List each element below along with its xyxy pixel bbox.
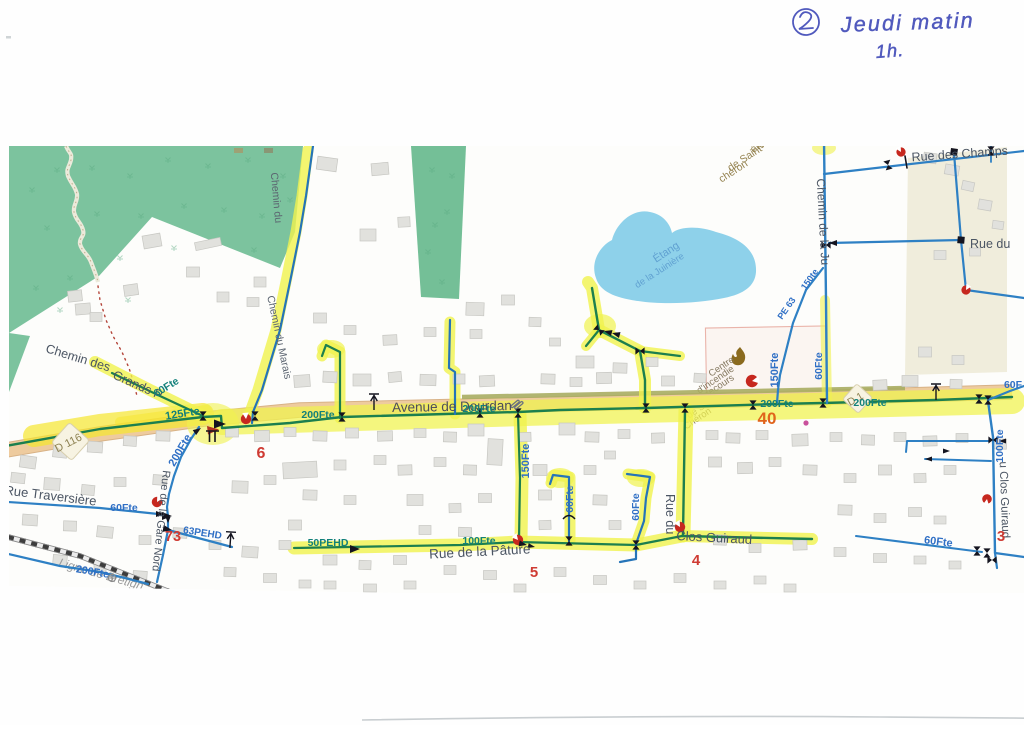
svg-text:100Fte: 100Fte	[994, 429, 1006, 462]
svg-text:73: 73	[165, 529, 181, 545]
svg-text:5: 5	[530, 564, 538, 581]
svg-text:50PEHD: 50PEHD	[308, 537, 349, 549]
svg-text:150Fte: 150Fte	[520, 444, 532, 479]
svg-text:60Fte: 60Fte	[110, 502, 138, 514]
svg-text:Rue du: Rue du	[663, 494, 677, 534]
svg-text:4: 4	[692, 552, 701, 569]
svg-text:200Fte: 200Fte	[853, 397, 886, 409]
svg-text:60Fte: 60Fte	[630, 493, 642, 521]
svg-text:150Fte: 150Fte	[769, 353, 781, 388]
svg-text:200Fte: 200Fte	[301, 409, 334, 421]
svg-text:1h.: 1h.	[875, 39, 905, 62]
svg-text:40: 40	[758, 409, 777, 428]
svg-text:3: 3	[997, 528, 1005, 545]
svg-text:60F: 60F	[1004, 379, 1023, 391]
svg-text:Rue du: Rue du	[970, 237, 1010, 251]
svg-text:Jeudi matin: Jeudi matin	[839, 8, 975, 37]
svg-text:60Fte: 60Fte	[564, 485, 576, 513]
svg-text:100Fte: 100Fte	[462, 535, 495, 547]
svg-text:200Fte: 200Fte	[462, 403, 495, 415]
svg-text:6: 6	[257, 445, 266, 462]
svg-text:60Fte: 60Fte	[813, 352, 825, 380]
